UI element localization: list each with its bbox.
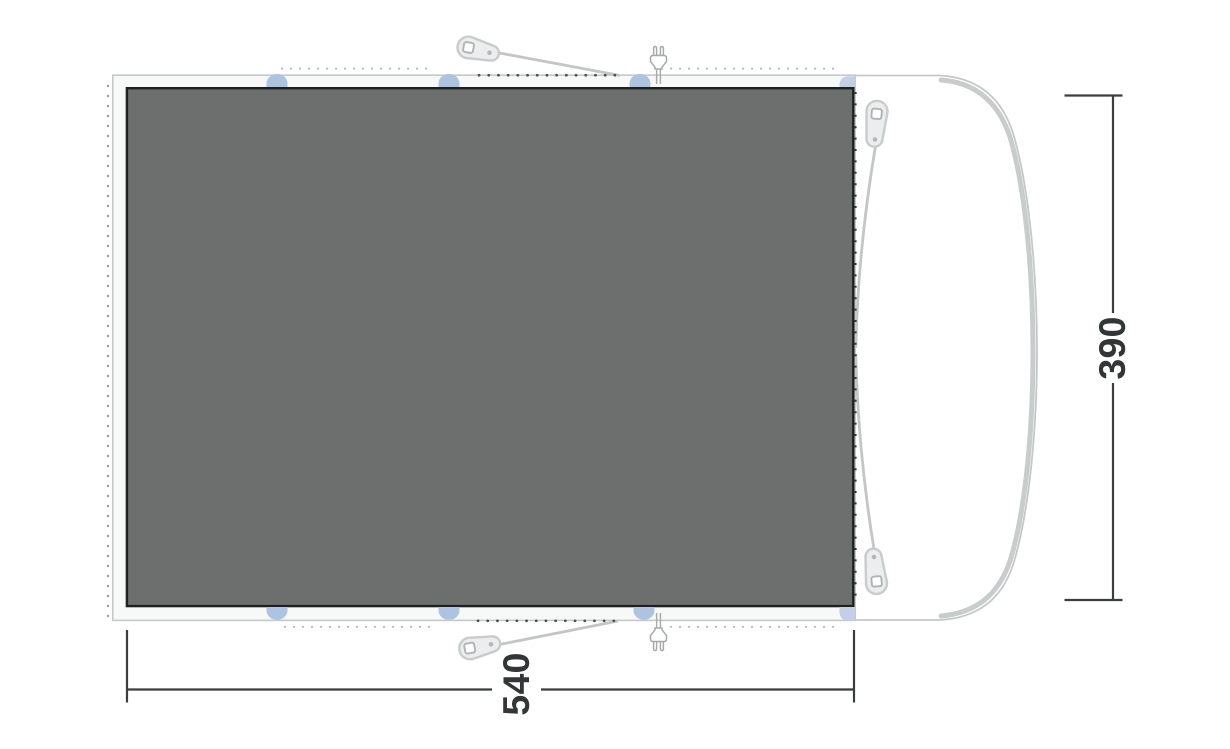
svg-text:540: 540 — [495, 652, 537, 715]
svg-text:390: 390 — [1091, 316, 1133, 379]
